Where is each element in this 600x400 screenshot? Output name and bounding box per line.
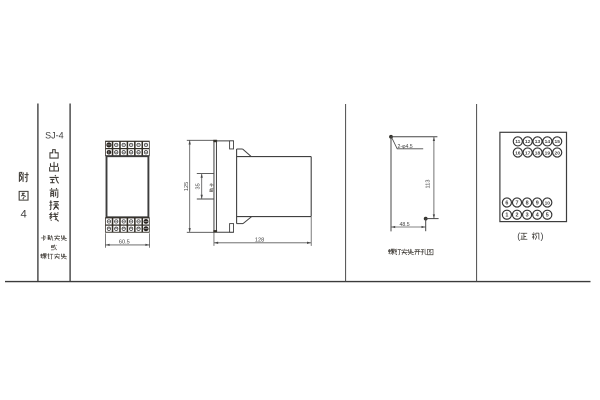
svg-text:(: ( — [517, 231, 520, 241]
svg-text:4: 4 — [536, 213, 539, 219]
svg-text:3: 3 — [526, 213, 529, 219]
svg-text:2: 2 — [516, 213, 519, 219]
svg-text:9: 9 — [536, 200, 539, 206]
svg-text:48.5: 48.5 — [400, 222, 410, 228]
svg-text:16: 16 — [515, 150, 521, 156]
svg-text:35: 35 — [195, 183, 201, 189]
svg-text:6: 6 — [505, 200, 508, 206]
svg-text:SJ-4: SJ-4 — [45, 131, 64, 141]
svg-text:60.5: 60.5 — [119, 239, 130, 245]
svg-text:14: 14 — [545, 139, 551, 145]
svg-text:125: 125 — [184, 182, 190, 191]
svg-text:13: 13 — [535, 139, 541, 145]
svg-text:12: 12 — [525, 139, 531, 145]
svg-text:113: 113 — [426, 180, 432, 189]
svg-text:17: 17 — [525, 150, 531, 156]
svg-text:11: 11 — [515, 139, 520, 145]
svg-text:10: 10 — [545, 200, 551, 206]
svg-text:4: 4 — [21, 209, 27, 221]
svg-text:): ) — [541, 231, 544, 241]
svg-text:19: 19 — [545, 150, 551, 156]
svg-text:15: 15 — [554, 139, 560, 145]
svg-text:2-φ4.5: 2-φ4.5 — [398, 144, 413, 150]
svg-text:1: 1 — [505, 213, 508, 219]
svg-text:20: 20 — [554, 150, 560, 156]
svg-text:8: 8 — [526, 200, 529, 206]
svg-text:5: 5 — [546, 213, 549, 219]
svg-text:7: 7 — [516, 200, 519, 206]
svg-text:18: 18 — [535, 150, 541, 156]
svg-text:128: 128 — [255, 237, 264, 243]
